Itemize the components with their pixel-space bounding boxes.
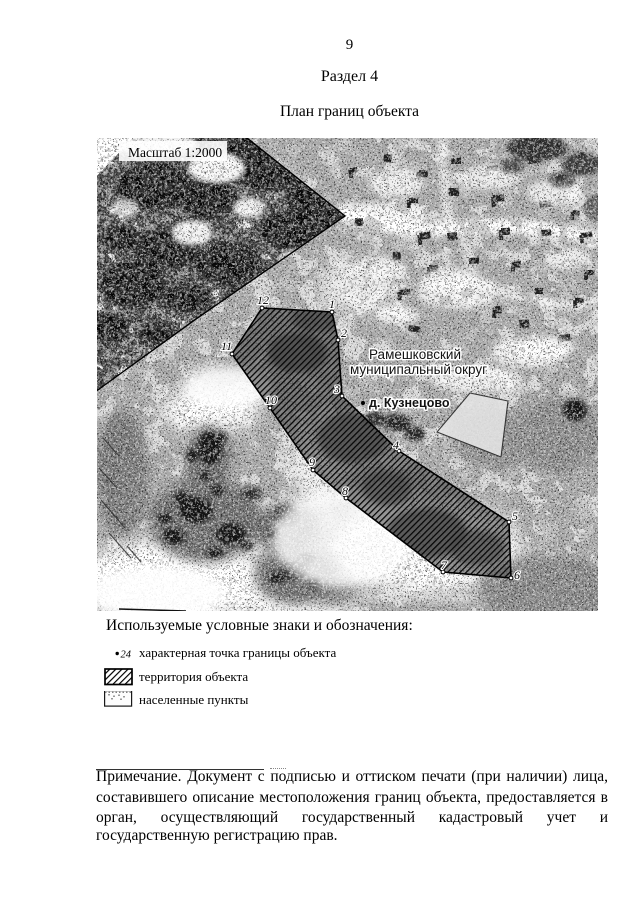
svg-text:24: 24 xyxy=(121,650,132,661)
svg-text:7: 7 xyxy=(441,558,448,572)
svg-text:12: 12 xyxy=(257,293,269,307)
svg-text:4: 4 xyxy=(393,438,399,452)
svg-text:8: 8 xyxy=(342,484,348,498)
svg-text:5: 5 xyxy=(512,509,518,523)
svg-text:6: 6 xyxy=(514,568,520,582)
svg-text:Рамешковский: Рамешковский xyxy=(369,347,461,362)
svg-text:1: 1 xyxy=(329,297,335,311)
svg-text:Масштаб 1:2000: Масштаб 1:2000 xyxy=(128,145,222,160)
svg-text:3: 3 xyxy=(333,382,340,396)
svg-text:2: 2 xyxy=(341,326,347,340)
svg-text:муниципальный округ: муниципальный округ xyxy=(350,362,487,377)
svg-text:10: 10 xyxy=(265,393,277,407)
svg-text:11: 11 xyxy=(221,339,232,353)
svg-text:д. Кузнецово: д. Кузнецово xyxy=(369,396,450,410)
svg-text:9: 9 xyxy=(309,455,315,469)
